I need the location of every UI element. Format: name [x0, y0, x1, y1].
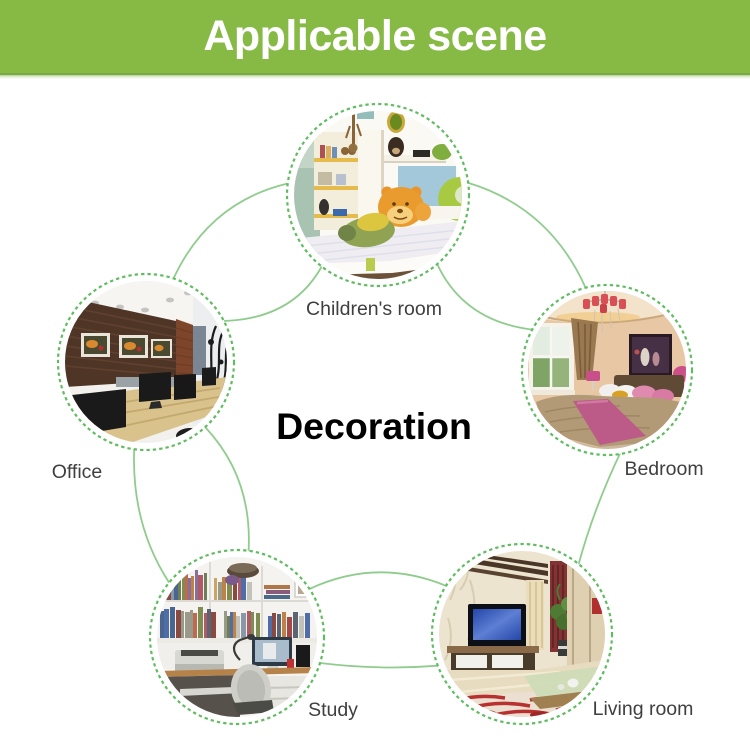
- svg-text:Office: Office: [52, 461, 103, 483]
- svg-text:Applicable scene: Applicable scene: [203, 12, 546, 60]
- svg-text:Living room: Living room: [593, 698, 694, 720]
- svg-text:Bedroom: Bedroom: [624, 458, 703, 480]
- svg-text:Children's room: Children's room: [306, 298, 442, 320]
- svg-text:Decoration: Decoration: [276, 405, 472, 447]
- svg-text:Study: Study: [308, 699, 358, 721]
